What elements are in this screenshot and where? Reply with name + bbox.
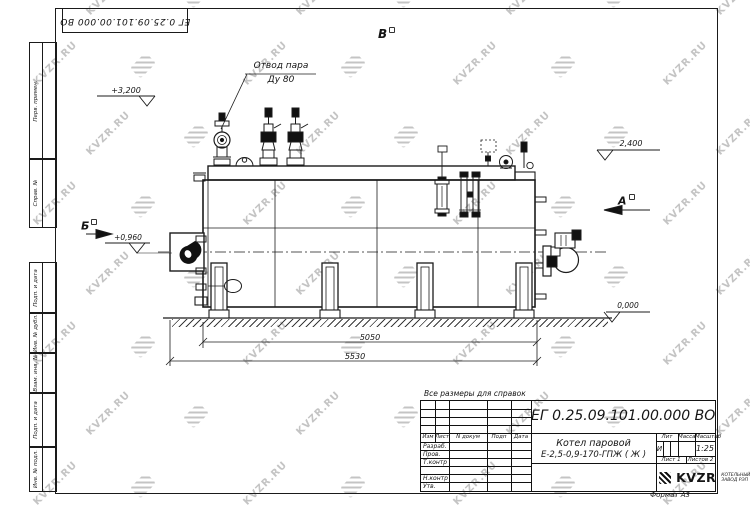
tb-col-list: Лист bbox=[435, 434, 449, 440]
margin-label-wrap: Инв. № дубл. bbox=[30, 313, 42, 353]
tb-row-tkontr: Т.контр bbox=[423, 459, 447, 466]
view-label-b-top: В bbox=[378, 27, 395, 41]
tb-sheet-label: Лист bbox=[661, 457, 675, 463]
tb-row-razrab: Разраб. bbox=[423, 443, 447, 450]
sheet-ref-icon bbox=[91, 219, 97, 225]
margin-box-podp-data-2: Подп. и дата bbox=[29, 392, 57, 448]
tb-line bbox=[421, 482, 531, 483]
margin-label: Справ. № bbox=[33, 180, 39, 207]
callout-steam-outlet-line1: Отвод пара bbox=[245, 61, 317, 71]
tb-line bbox=[421, 409, 531, 410]
margin-label-wrap: Подп. и дата bbox=[30, 393, 42, 447]
tb-sheets-cell: Листов 2 bbox=[686, 457, 715, 463]
tb-lit-value: И bbox=[656, 445, 663, 453]
margin-divider bbox=[42, 263, 43, 313]
margin-box-vzam-inv: Взам. инв. № bbox=[29, 352, 57, 394]
tb-lit-label: Лит bbox=[656, 434, 678, 440]
margin-box-inv-podl: Инв. № подл. bbox=[29, 446, 57, 492]
tb-line bbox=[670, 441, 671, 456]
tb-col-ndokum: N докум bbox=[449, 434, 487, 440]
margin-label: Подп. и дата bbox=[33, 269, 39, 306]
margin-label: Перв. примен. bbox=[33, 80, 39, 121]
kvzr-caption-line2: ЗАВОД РЭП bbox=[721, 478, 750, 483]
margin-box-inv-dubl: Инв. № дубл. bbox=[29, 312, 57, 354]
margin-box-sprav-n: Справ. № bbox=[29, 158, 57, 228]
margin-label-wrap: Подп. и дата bbox=[30, 263, 42, 313]
margin-divider bbox=[42, 43, 43, 159]
tb-row-utv: Утв. bbox=[423, 483, 436, 490]
callout-steam-outlet-line2: Ду 80 bbox=[245, 75, 317, 85]
margin-divider bbox=[42, 159, 43, 227]
reference-note: Все размеры для справок bbox=[424, 389, 526, 398]
top-stamp-box: ЕГ 0.25.09.101.00.000 ВО bbox=[62, 8, 188, 33]
margin-divider bbox=[42, 313, 43, 353]
level-text-3200: +3,200 bbox=[97, 86, 155, 95]
tb-line bbox=[449, 401, 450, 491]
engineering-drawing-sheet: { "watermark": { "text": "KVZR.RU" }, "s… bbox=[0, 0, 750, 500]
tb-sheet-value: 1 bbox=[677, 457, 681, 463]
tb-col-podp: Подп bbox=[487, 434, 511, 440]
tb-line bbox=[531, 463, 715, 464]
kvzr-logo-icon bbox=[659, 472, 671, 484]
level-text-2400: 2,400 bbox=[602, 139, 660, 148]
kvzr-logo-text: KVZR bbox=[676, 470, 716, 485]
margin-divider bbox=[42, 447, 43, 491]
tb-line bbox=[421, 417, 531, 418]
tb-product-name-line1: Котел паровой bbox=[531, 438, 656, 449]
tb-sheet-cell: Лист 1 bbox=[656, 457, 686, 463]
margin-label-wrap: Перв. примен. bbox=[30, 43, 42, 159]
kvzr-logo-caption: КОТЕЛЬНЫЙ ЗАВОД РЭП bbox=[721, 473, 750, 483]
tb-line bbox=[421, 466, 531, 467]
kvzr-caption-line1: КОТЕЛЬНЫЙ bbox=[721, 473, 750, 478]
format-note: Формат А3 bbox=[625, 491, 715, 499]
margin-divider bbox=[42, 353, 43, 393]
margin-label: Подп. и дата bbox=[33, 401, 39, 438]
view-label-b-front: Б bbox=[81, 219, 97, 233]
tb-doc-number: ЕГ 0.25.09.101.00.000 ВО bbox=[531, 408, 715, 424]
level-text-0000: 0,000 bbox=[606, 301, 650, 310]
level-text-0960: +0,960 bbox=[104, 233, 152, 242]
margin-label-wrap: Взам. инв. № bbox=[30, 353, 42, 393]
tb-line bbox=[421, 425, 531, 426]
margin-label: Инв. № дубл. bbox=[33, 314, 39, 352]
tb-sheets-label: Листов bbox=[688, 457, 709, 463]
margin-divider bbox=[42, 393, 43, 447]
tb-col-data: Дата bbox=[511, 434, 531, 440]
tb-scale-value: 1:25 bbox=[695, 444, 715, 453]
sheet-ref-icon bbox=[389, 27, 395, 33]
tb-sheets-value: 2 bbox=[710, 457, 714, 463]
tb-product-name-line2: Е-2,5-0,9-170-ГПЖ ( Ж ) bbox=[531, 450, 656, 460]
view-label-a-rear: А bbox=[618, 194, 635, 208]
tb-logo-cell: KVZR КОТЕЛЬНЫЙ ЗАВОД РЭП bbox=[659, 467, 713, 488]
tb-scale-label: Масштаб bbox=[695, 434, 715, 440]
view-letter: Б bbox=[81, 220, 89, 233]
margin-label-wrap: Инв. № подл. bbox=[30, 447, 42, 491]
title-block: Изм Лист N докум Подп Дата Разраб. Пров.… bbox=[420, 400, 716, 492]
top-stamp-text: ЕГ 0.25.09.101.00.000 ВО bbox=[60, 16, 190, 26]
dim-text-5050: 5050 bbox=[340, 333, 400, 342]
margin-label: Взам. инв. № bbox=[33, 354, 39, 391]
view-letter: А bbox=[618, 195, 627, 208]
margin-label-wrap: Справ. № bbox=[30, 159, 42, 227]
margin-box-perv-primen: Перв. примен. bbox=[29, 42, 57, 160]
tb-col-izm: Изм bbox=[421, 434, 435, 440]
sheet-ref-icon bbox=[629, 194, 635, 200]
tb-line bbox=[487, 401, 488, 491]
tb-line bbox=[656, 441, 715, 442]
tb-line bbox=[663, 441, 664, 456]
view-letter: В bbox=[378, 27, 387, 41]
tb-row-nkontr: Н.контр bbox=[423, 475, 448, 482]
tb-line bbox=[511, 401, 512, 491]
tb-row-prov: Пров. bbox=[423, 451, 440, 458]
tb-mass-label: Масса bbox=[678, 434, 695, 440]
margin-box-podp-data-1: Подп. и дата bbox=[29, 262, 57, 314]
dim-text-5530: 5530 bbox=[325, 352, 385, 361]
margin-label: Инв. № подл. bbox=[33, 450, 39, 488]
